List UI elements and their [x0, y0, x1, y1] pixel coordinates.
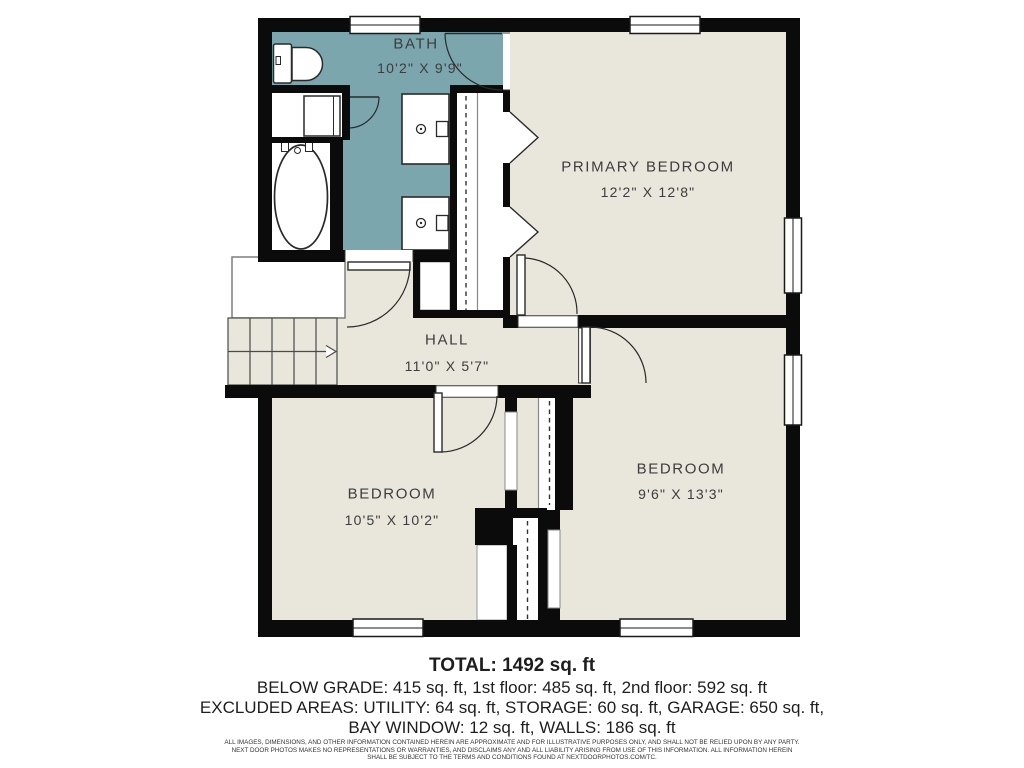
- wall-closet-a-stub-bottom: [505, 490, 517, 508]
- primary-closet: [457, 93, 503, 317]
- wall-niche-right: [507, 545, 517, 622]
- wall-exterior-left-lower: [258, 387, 272, 637]
- floor-plan-drawing: [0, 0, 1024, 768]
- wall-closet-b-stub-top: [538, 510, 560, 530]
- floor-areas-text: BELOW GRADE: 415 sq. ft, 1st floor: 485 …: [0, 678, 1024, 698]
- wall-linen-right: [342, 93, 350, 140]
- bedroom-right-door-leaf: [582, 327, 590, 383]
- wall-tub-right: [330, 137, 343, 250]
- bedroom-left-label: BEDROOM: [348, 486, 437, 503]
- wall-bath-bottom-left: [258, 250, 345, 262]
- disclaimer-line-3: SHALL BE SUBJECT TO THE TERMS AND CONDIT…: [0, 754, 1024, 762]
- primary-bedroom-dimensions: 12'2" X 12'8": [601, 184, 696, 200]
- opening-bath-primary: [503, 33, 510, 90]
- wall-mid-chunk: [475, 508, 513, 545]
- bedroom-left-door-leaf: [434, 393, 442, 452]
- closet-b-door-panel: [548, 530, 560, 608]
- wall-exterior-bottom: [258, 620, 800, 637]
- sink-drain-dot-bottom: [420, 222, 422, 224]
- wall-linen-top: [258, 85, 350, 93]
- wall-exterior-top: [258, 18, 800, 32]
- wall-closet-a-right: [555, 398, 573, 510]
- wall-primary-closet-right-c: [503, 257, 510, 317]
- wall-primary-closet-right-b: [503, 163, 510, 207]
- hall-label: HALL: [425, 332, 469, 349]
- excluded-areas-text: EXCLUDED AREAS: UTILITY: 64 sq. ft, STOR…: [0, 698, 1024, 718]
- bedroom-right-dimensions: 9'6" X 13'3": [638, 486, 724, 502]
- wall-closet-b-stub-bottom: [538, 608, 560, 622]
- tub-handle-left-icon: [282, 143, 289, 152]
- linen-cabinet-icon: [304, 96, 340, 136]
- wall-hall-bottom: [225, 385, 591, 398]
- wall-exterior-right: [786, 32, 800, 637]
- primary-door-leaf: [517, 255, 525, 315]
- wall-primary-bottom-right: [578, 315, 786, 328]
- tub-handle-right-icon: [306, 143, 313, 152]
- faucet-top-icon: [437, 122, 449, 137]
- opening-hall-bath: [345, 250, 413, 262]
- primary-bedroom-label: PRIMARY BEDROOM: [561, 159, 734, 176]
- bath-label: BATH: [393, 36, 438, 53]
- toilet-bowl-icon: [292, 48, 323, 81]
- closet-a-floor: [517, 398, 538, 508]
- wall-primary-closet-left: [450, 93, 457, 317]
- disclaimer-line-2: NEXT DOOR PHOTOS MAKES NO REPRESENTATION…: [0, 747, 1024, 755]
- bath-dimensions: 10'2" X 9'9": [377, 60, 463, 76]
- opening-primary: [518, 315, 578, 328]
- closet-a: [538, 398, 555, 508]
- bathtub-icon: [275, 145, 328, 249]
- wall-hall-closet-left: [413, 255, 420, 318]
- wall-exterior-left-upper: [258, 32, 272, 257]
- hall-closet: [420, 262, 450, 310]
- faucet-bottom-icon: [437, 216, 449, 231]
- opening-bedroom-left: [436, 385, 498, 398]
- sink-drain-dot-top: [420, 128, 422, 130]
- total-area-text: TOTAL: 1492 sq. ft: [0, 655, 1024, 677]
- tub-spout-icon: [295, 148, 301, 154]
- wall-closet-a-stub-top: [505, 398, 517, 412]
- toilet-flush-icon: [276, 57, 281, 65]
- wall-closet-b-right: [538, 530, 548, 608]
- bedroom-left-dimensions: 10'5" X 10'2": [345, 512, 440, 528]
- stairwell-void: [232, 257, 345, 318]
- wall-tub-top: [258, 137, 332, 143]
- wall-hall-top-left: [413, 310, 510, 318]
- wall-primary-closet-right-a: [503, 90, 510, 112]
- bedroom-left-niche: [477, 545, 507, 620]
- disclaimer-line-1: ALL IMAGES, DIMENSIONS, AND OTHER INFORM…: [0, 739, 1024, 747]
- bedroom-left-floor: [272, 398, 505, 620]
- excluded-areas-text-2: BAY WINDOW: 12 sq. ft, WALLS: 186 sq. ft: [0, 718, 1024, 738]
- stairwell: [228, 257, 345, 385]
- closet-a-door-panel: [505, 412, 517, 490]
- hall-dimensions: 11'0" X 5'7": [405, 358, 490, 374]
- wall-primary-bottom-left: [503, 315, 518, 328]
- floor-plan-page: BATH 10'2" X 9'9" PRIMARY BEDROOM 12'2" …: [0, 0, 1024, 768]
- hall-bath-door-leaf: [348, 262, 410, 270]
- bedroom-right-label: BEDROOM: [637, 461, 726, 478]
